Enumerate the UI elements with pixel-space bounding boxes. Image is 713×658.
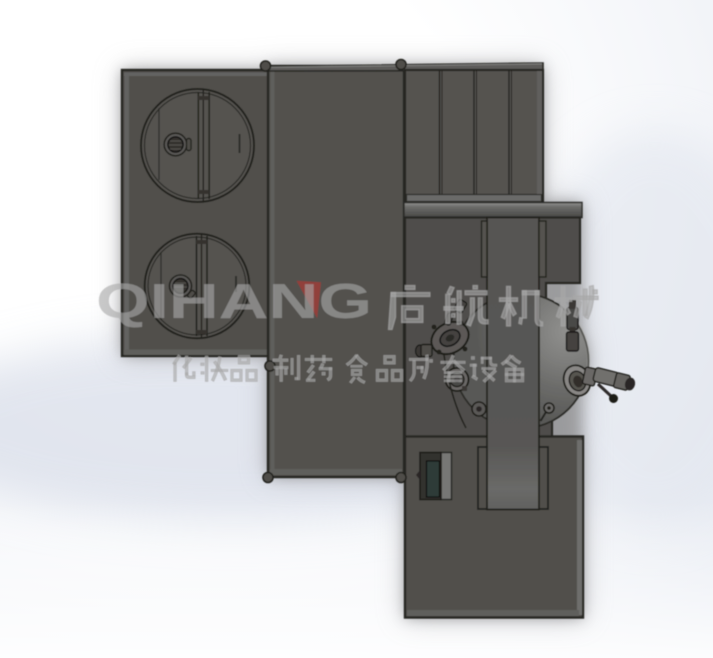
svg-text:QIHANG: QIHANG bbox=[96, 274, 372, 329]
